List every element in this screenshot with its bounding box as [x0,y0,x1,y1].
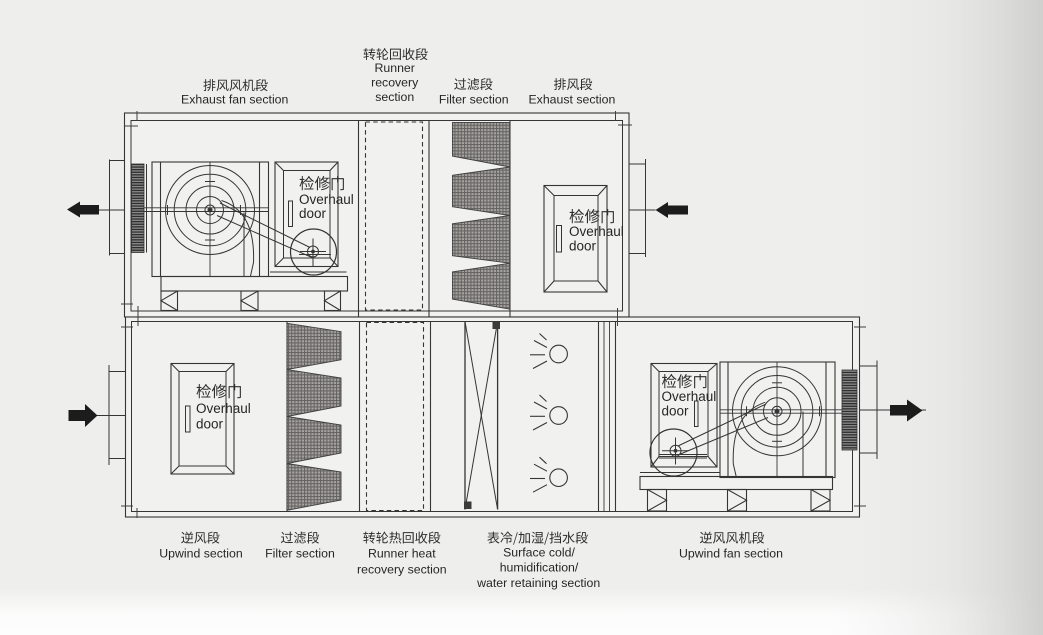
svg-text:Overhaul: Overhaul [299,192,354,207]
svg-text:Filter section: Filter section [265,547,335,561]
svg-text:Overhaul: Overhaul [662,389,717,404]
svg-text:water retaining section: water retaining section [476,576,600,590]
svg-text:Overhaul: Overhaul [569,224,624,239]
svg-text:Runner: Runner [375,61,415,75]
svg-text:Upwind section: Upwind section [159,547,243,561]
svg-text:section: section [375,90,414,104]
svg-text:recovery section: recovery section [357,563,447,577]
svg-text:door: door [569,239,597,254]
svg-text:Overhaul: Overhaul [196,401,251,416]
svg-text:door: door [662,404,690,419]
svg-text:Exhaust section: Exhaust section [528,93,615,107]
svg-text:Upwind fan section: Upwind fan section [679,547,783,561]
svg-text:Filter section: Filter section [439,93,509,107]
svg-text:Exhaust fan section: Exhaust fan section [181,93,288,107]
svg-text:Surface cold/: Surface cold/ [503,546,575,560]
svg-text:door: door [299,206,327,221]
svg-text:door: door [196,417,224,432]
svg-text:Runner heat: Runner heat [368,547,436,561]
svg-text:humidification/: humidification/ [500,561,579,575]
svg-text:recovery: recovery [371,76,419,90]
